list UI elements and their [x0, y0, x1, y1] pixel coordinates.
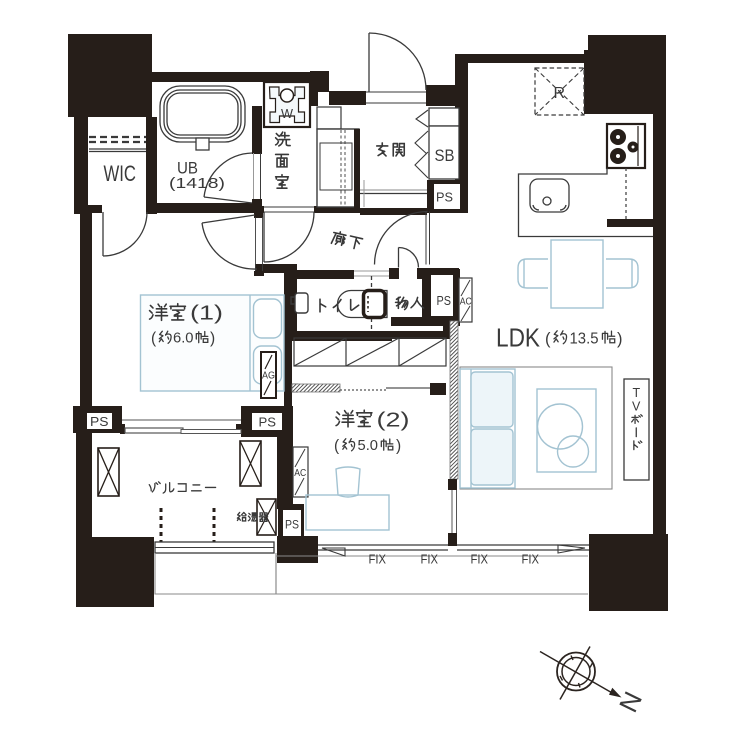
svg-text:R: R — [554, 85, 566, 102]
svg-text:PS: PS — [259, 416, 277, 430]
svg-text:13.5: 13.5 — [570, 331, 599, 348]
svg-text:(1418): (1418) — [169, 175, 225, 192]
svg-text:(2): (2) — [377, 410, 410, 432]
svg-text:): ) — [617, 330, 623, 348]
svg-text:SB: SB — [435, 146, 455, 165]
svg-text:AG: AG — [262, 371, 275, 382]
svg-text:): ) — [210, 330, 215, 347]
svg-text:FIX: FIX — [522, 553, 540, 567]
svg-text:6.0: 6.0 — [173, 331, 194, 347]
svg-text:(: ( — [151, 330, 157, 347]
svg-text:AC: AC — [460, 296, 472, 308]
svg-text:5.0: 5.0 — [358, 438, 379, 454]
svg-text:PS: PS — [285, 518, 299, 532]
svg-text:(1): (1) — [190, 303, 223, 325]
svg-text:PS: PS — [436, 191, 453, 205]
svg-text:W: W — [281, 106, 294, 121]
svg-text:): ) — [396, 438, 401, 455]
svg-text:PS: PS — [437, 294, 452, 308]
svg-text:FIX: FIX — [369, 553, 387, 567]
svg-text:V: V — [632, 400, 641, 414]
svg-text:T: T — [633, 386, 641, 400]
svg-text:(: ( — [334, 438, 340, 455]
svg-text:PS: PS — [90, 415, 109, 429]
svg-text:LDK: LDK — [496, 323, 541, 353]
svg-text:FIX: FIX — [421, 553, 439, 567]
svg-text:AC: AC — [294, 467, 306, 479]
svg-text:WIC: WIC — [104, 161, 137, 186]
svg-text:(: ( — [545, 330, 551, 348]
svg-text:FIX: FIX — [471, 553, 489, 567]
